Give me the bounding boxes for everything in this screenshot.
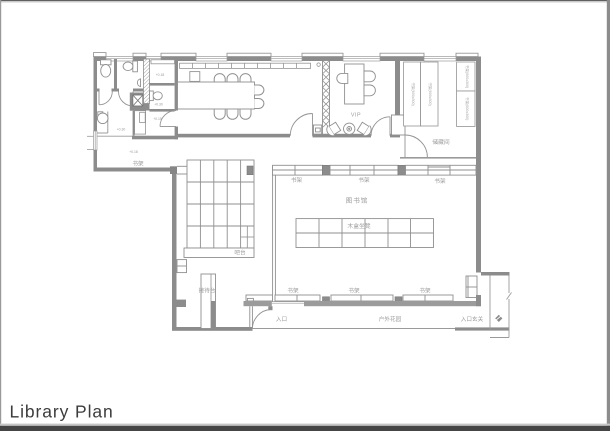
svg-text:图书馆: 图书馆 (346, 196, 369, 205)
svg-text:木盒坐凳: 木盒坐凳 (347, 222, 370, 230)
svg-text:书架: 书架 (291, 176, 303, 184)
svg-text:书架(600x300): 书架(600x300) (411, 82, 416, 105)
svg-text:VIP: VIP (351, 113, 361, 119)
svg-text:书架: 书架 (287, 287, 299, 295)
svg-text:入口: 入口 (276, 316, 287, 323)
svg-text:+0.30: +0.30 (117, 127, 126, 131)
svg-text:+0.30: +0.30 (154, 103, 163, 107)
svg-text:书架: 书架 (434, 177, 446, 185)
svg-text:户外花园: 户外花园 (379, 315, 402, 323)
svg-text:书架(600x300): 书架(600x300) (465, 97, 470, 120)
svg-text:储藏间: 储藏间 (432, 138, 450, 146)
svg-text:书架: 书架 (348, 287, 360, 295)
svg-text:+0.18: +0.18 (156, 73, 165, 77)
svg-text:+0.15: +0.15 (153, 117, 162, 121)
svg-text:书架: 书架 (132, 159, 144, 167)
svg-text:书架: 书架 (419, 287, 431, 295)
svg-text:Library Plan: Library Plan (10, 402, 114, 422)
svg-text:接待台: 接待台 (199, 286, 216, 294)
svg-text:入口玄关: 入口玄关 (461, 315, 484, 323)
svg-text:书架(600x300): 书架(600x300) (465, 65, 470, 88)
svg-text:书架: 书架 (358, 176, 370, 184)
svg-text:+0.18: +0.18 (129, 150, 138, 154)
svg-text:书架(600x300): 书架(600x300) (428, 82, 433, 105)
svg-text:吧台: 吧台 (234, 249, 246, 257)
